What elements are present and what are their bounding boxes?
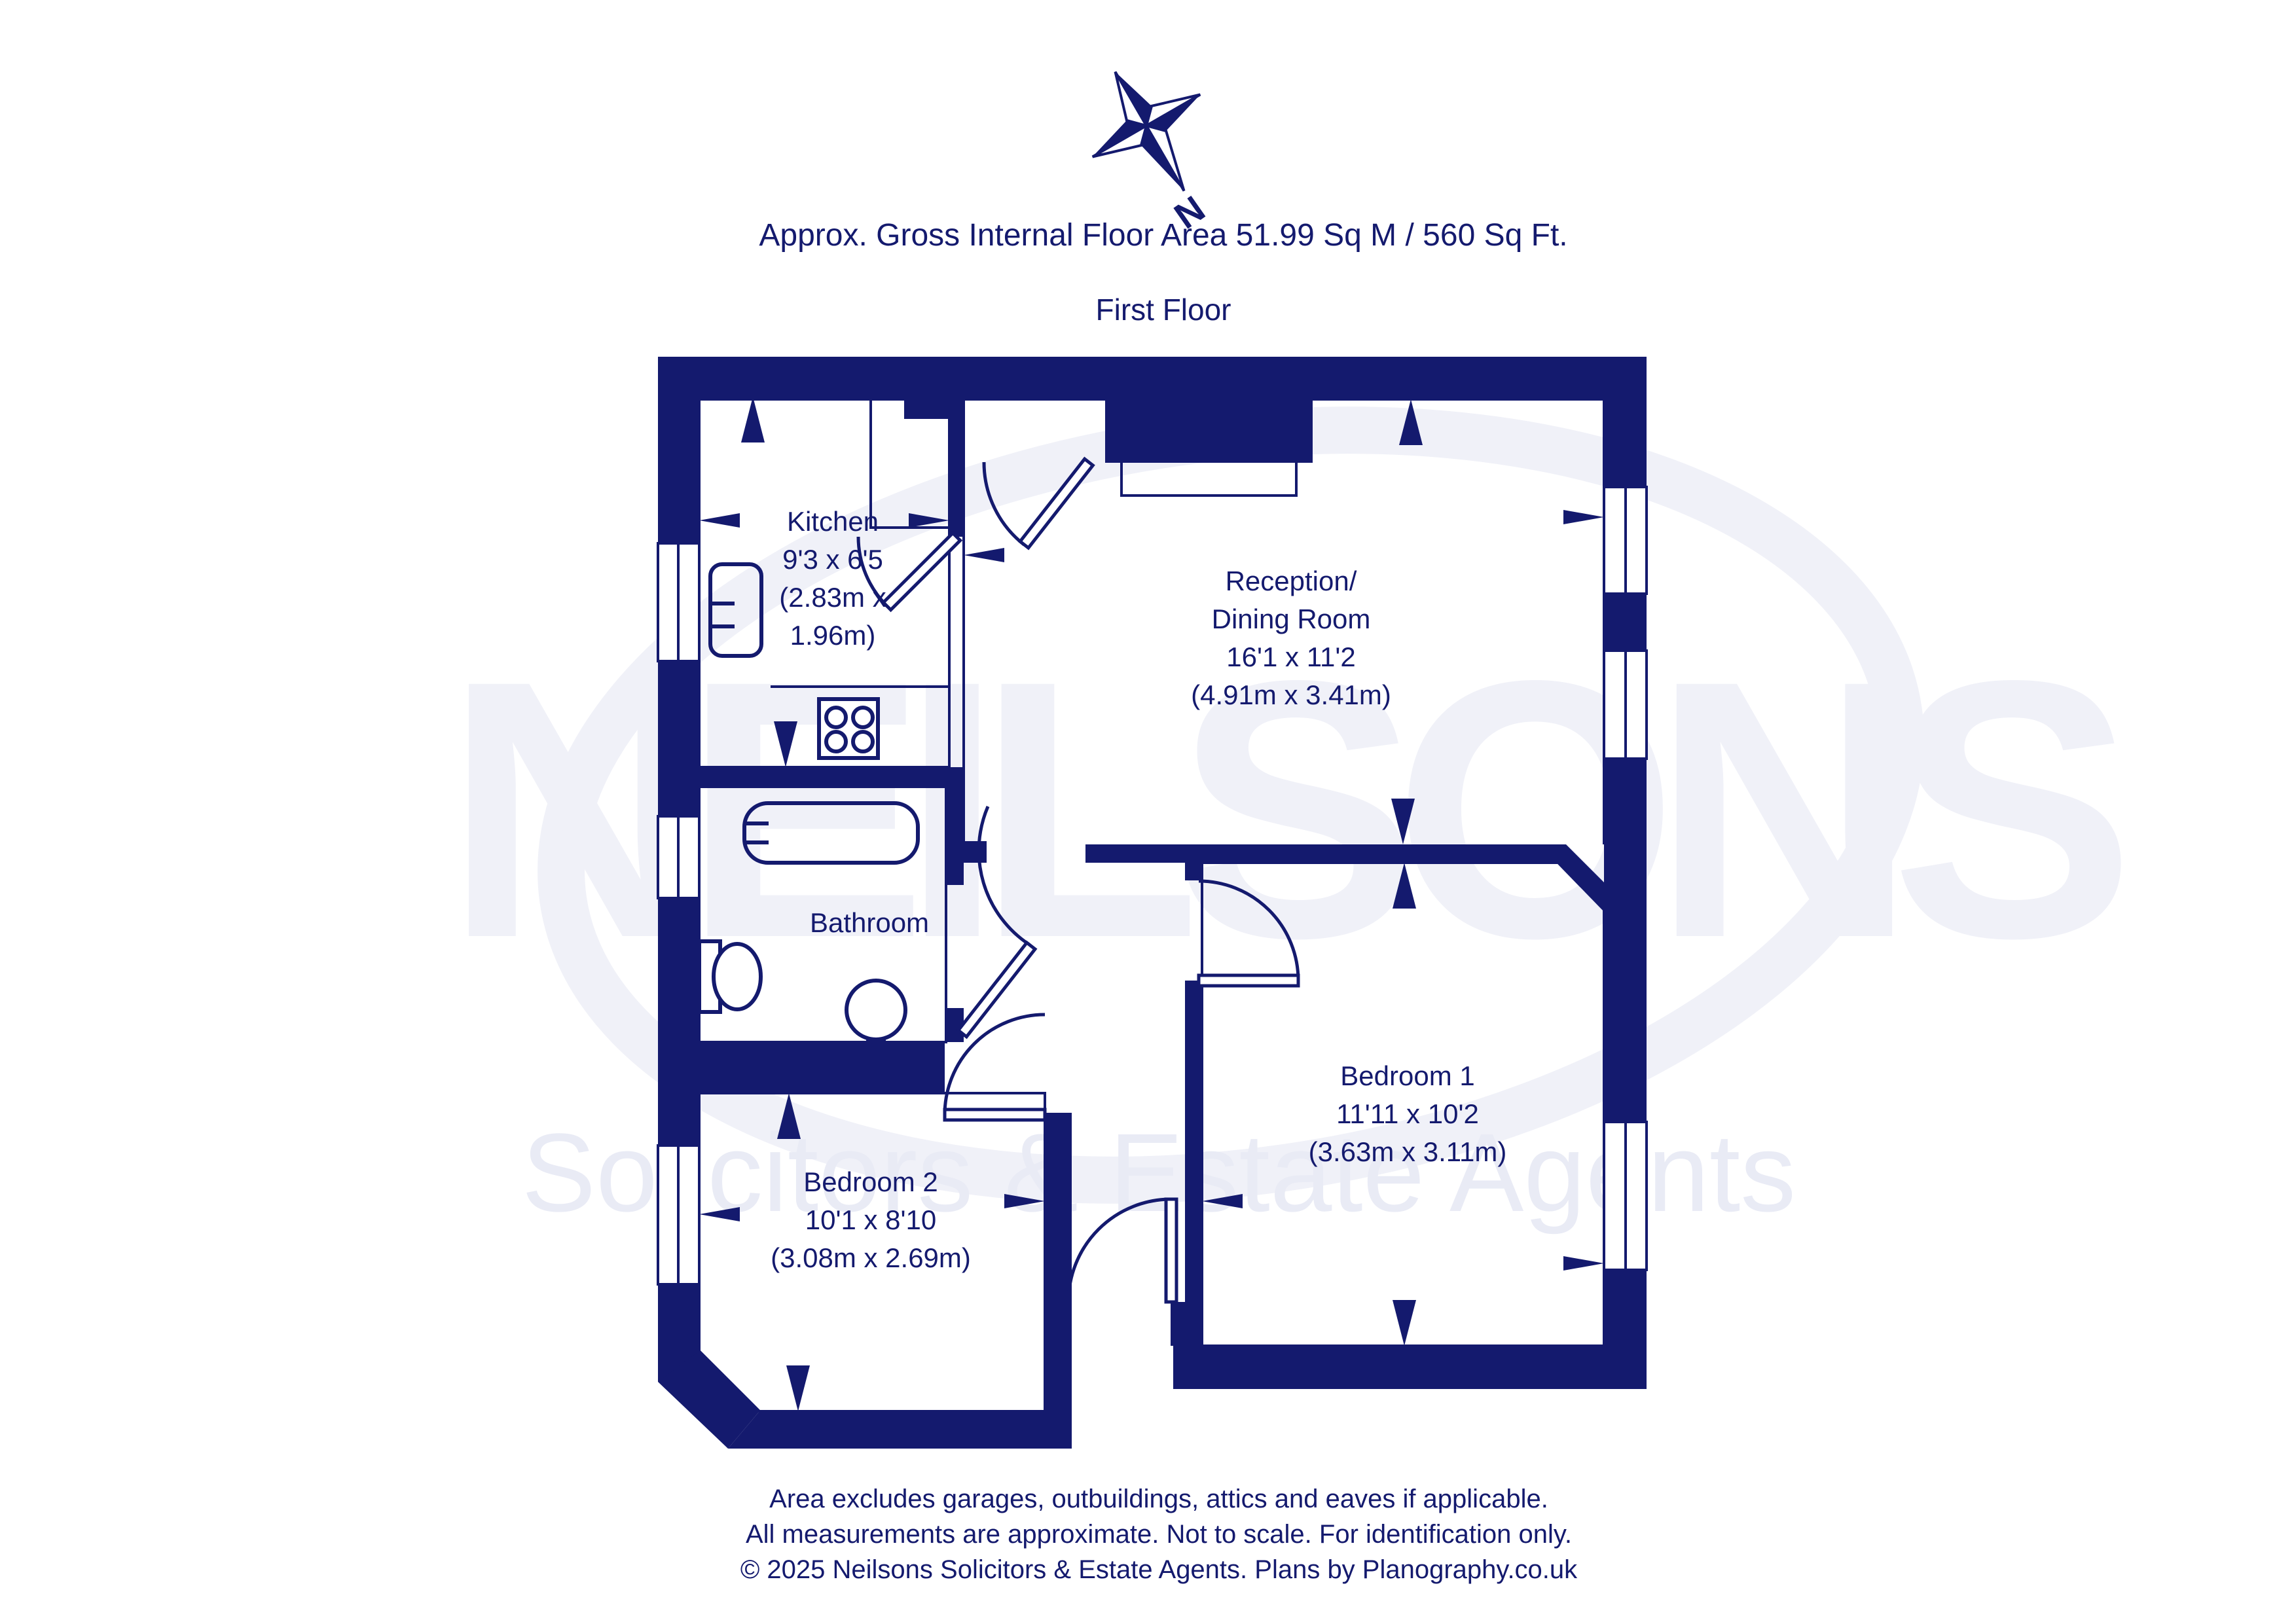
arrow-bedroom2-down	[786, 1365, 810, 1411]
wall-corridor-stub	[1171, 1302, 1187, 1346]
wall-bedroom1-left	[1185, 981, 1202, 1346]
wall-kitchen-bathroom	[699, 767, 964, 787]
window-reception-2	[1604, 651, 1647, 759]
bedroom1-door-leaf	[1199, 975, 1298, 986]
wall-kitchen-jamb	[904, 397, 949, 419]
kitchen-label: Kitchen 9'3 x 6'5 (2.83m x 1.96m)	[779, 503, 886, 655]
wall-bathroom-south	[699, 1042, 945, 1093]
floor-label: First Floor	[1096, 292, 1231, 327]
arrow-bedroom1-right	[1563, 1256, 1604, 1271]
wall-bathroom-right-upper	[946, 787, 964, 885]
page-title: Approx. Gross Internal Floor Area 51.99 …	[759, 217, 1567, 254]
corridor-door-leaf	[1166, 1199, 1176, 1302]
window-kitchen	[658, 543, 699, 661]
bedroom2-label: Bedroom 2 10'1 x 8'10 (3.08m x 2.69m)	[771, 1163, 971, 1277]
wall-bottom-bedroom1	[1173, 1346, 1647, 1389]
footer-disclaimer-1: Area excludes garages, outbuildings, att…	[769, 1481, 1548, 1517]
footer-copyright: © 2025 Neilsons Solicitors & Estate Agen…	[740, 1552, 1577, 1587]
reception-label: Reception/ Dining Room 16'1 x 11'2 (4.91…	[1191, 562, 1391, 714]
wall-kitchen-partition	[949, 399, 964, 537]
window-bedroom1	[1604, 1122, 1647, 1270]
toilet-icon	[699, 941, 761, 1012]
wall-bedroom1-door-stub	[1185, 863, 1202, 880]
floorplan-page: NEILSONS Solicitors & Estate Agents N	[0, 0, 2296, 1624]
window-reception-1	[1604, 487, 1647, 594]
wall-bedroom2-right	[1045, 1113, 1072, 1411]
wall-hall-stub	[964, 841, 987, 863]
window-bathroom	[658, 816, 699, 898]
window-bedroom2	[658, 1146, 699, 1284]
bedroom2-door-leaf	[945, 1110, 1045, 1120]
arrow-bedroom1-down	[1393, 1300, 1416, 1346]
hob-icon	[819, 699, 878, 758]
wall-bottom-bedroom2	[728, 1411, 1072, 1449]
wall-top-block	[1106, 357, 1311, 461]
compass-rose-icon	[1061, 41, 1238, 222]
arrow-reception-left	[964, 548, 1004, 562]
arrow-reception-right	[1563, 510, 1604, 524]
arrow-kitchen-up	[741, 397, 765, 442]
footer-disclaimer-2: All measurements are approximate. Not to…	[746, 1517, 1572, 1552]
bathroom-label: Bathroom	[810, 904, 929, 942]
arrow-kitchen-left	[699, 513, 740, 528]
bedroom1-label: Bedroom 1 11'11 x 10'2 (3.63m x 3.11m)	[1309, 1057, 1507, 1171]
